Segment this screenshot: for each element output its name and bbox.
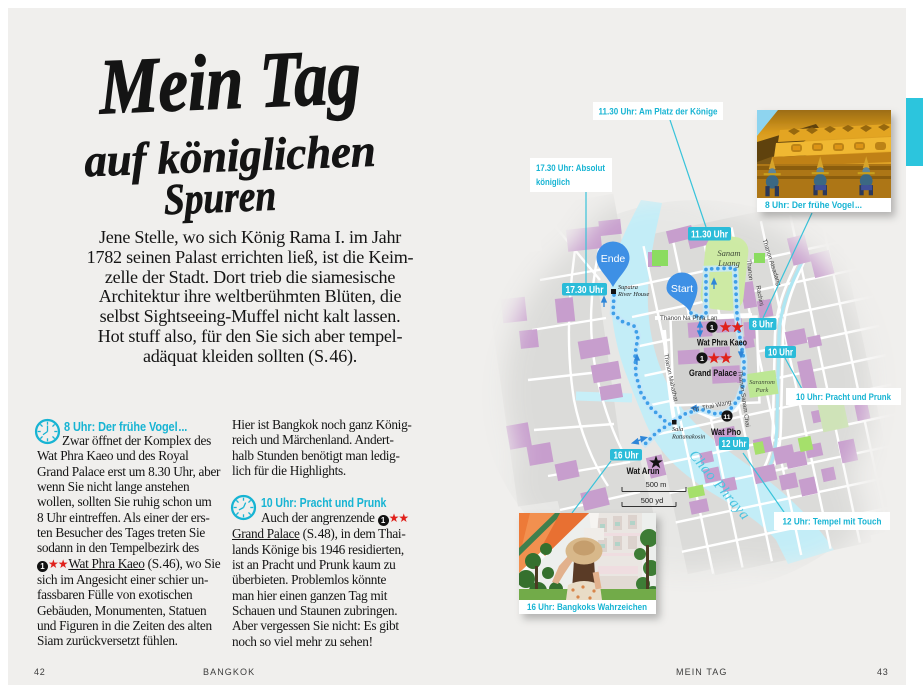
svg-text:Supatra: Supatra [618,284,638,291]
svg-text:17.30 Uhr: Absolut: 17.30 Uhr: Absolut [536,163,606,174]
svg-text:17.30 Uhr: 17.30 Uhr [566,285,604,296]
svg-text:Wat Pho: Wat Pho [711,427,741,437]
svg-text:16 Uhr: 16 Uhr [614,451,639,462]
svg-text:8 Uhr: Der frühe Vogel ...: 8 Uhr: Der frühe Vogel ... [765,200,862,211]
svg-text:Saranrom: Saranrom [749,379,775,386]
svg-text:8 Uhr: 8 Uhr [752,320,773,331]
svg-text:11.30 Uhr: 11.30 Uhr [691,230,728,241]
svg-text:12 Uhr: Tempel mit Touch: 12 Uhr: Tempel mit Touch [783,517,882,528]
svg-text:Sala: Sala [672,426,683,433]
svg-text:1: 1 [710,323,714,332]
svg-text:Luang: Luang [717,258,740,268]
svg-text:königlich: königlich [536,177,570,188]
svg-text:Grand Palace: Grand Palace [689,368,737,378]
svg-text:12 Uhr: 12 Uhr [722,439,747,450]
svg-text:River House: River House [617,291,650,298]
svg-text:10 Uhr: 10 Uhr [768,348,793,359]
svg-text:11: 11 [723,414,730,421]
svg-text:1: 1 [700,354,704,363]
svg-text:Rattanakosin: Rattanakosin [671,434,705,441]
svg-text:500 yd: 500 yd [641,496,664,505]
svg-text:Sanam: Sanam [717,248,740,258]
svg-text:Start: Start [671,283,693,295]
svg-text:11.30 Uhr: Am Platz der Könige: 11.30 Uhr: Am Platz der Könige [599,107,718,118]
svg-text:500 m: 500 m [646,480,667,489]
svg-text:Thanon Na Phra Lan: Thanon Na Phra Lan [660,315,718,322]
svg-text:16 Uhr: Bangkoks Wahrzeichen: 16 Uhr: Bangkoks Wahrzeichen [527,602,647,613]
svg-text:Wat Arun: Wat Arun [627,466,660,476]
svg-text:Park: Park [755,387,769,394]
svg-text:Wat Phra Kaeo: Wat Phra Kaeo [697,338,747,348]
svg-text:Ende: Ende [601,253,626,265]
svg-text:10 Uhr: Pracht und Prunk: 10 Uhr: Pracht und Prunk [796,392,892,403]
